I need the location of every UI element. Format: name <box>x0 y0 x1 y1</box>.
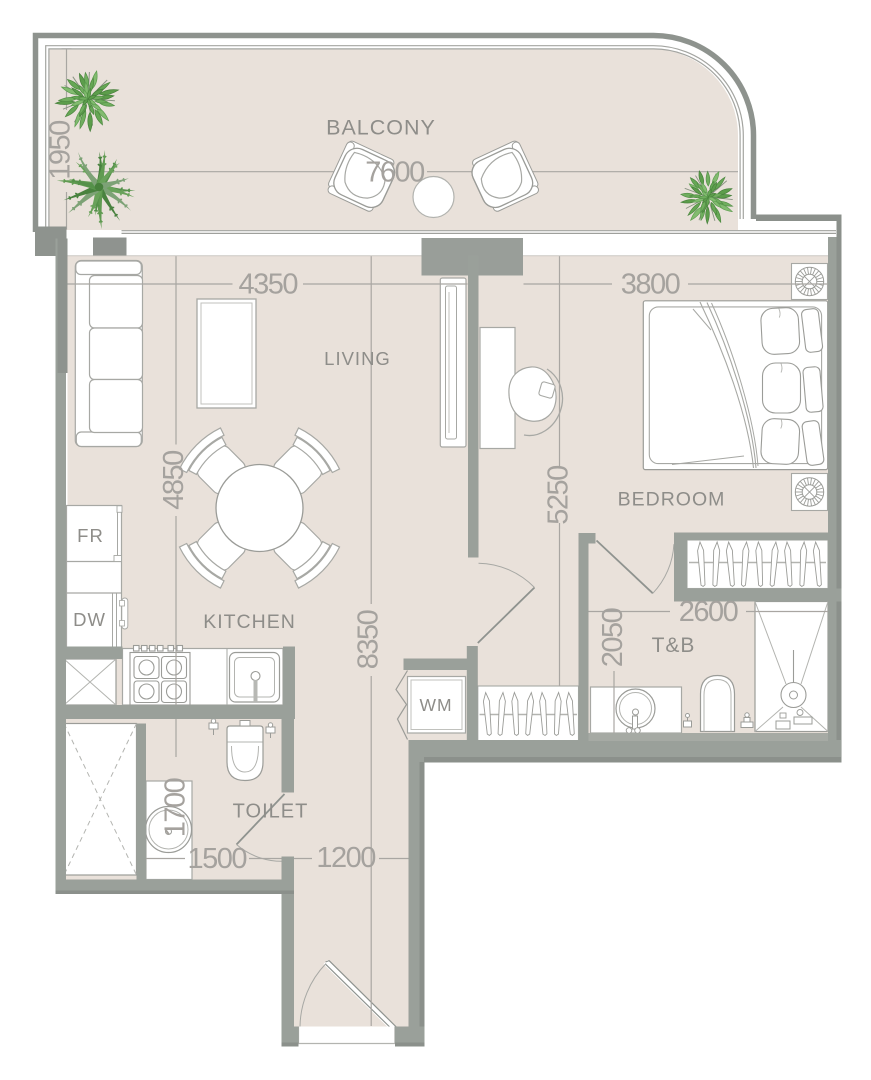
svg-text:3800: 3800 <box>621 269 680 301</box>
svg-text:4350: 4350 <box>239 269 298 301</box>
svg-text:1700: 1700 <box>160 778 192 837</box>
svg-text:BEDROOM: BEDROOM <box>618 489 726 511</box>
svg-text:2600: 2600 <box>679 596 738 628</box>
svg-text:8350: 8350 <box>353 610 385 669</box>
svg-text:FR: FR <box>77 525 104 546</box>
svg-text:DW: DW <box>73 609 106 630</box>
svg-text:BALCONY: BALCONY <box>326 116 436 140</box>
svg-text:7600: 7600 <box>365 157 424 189</box>
svg-text:LIVING: LIVING <box>324 348 391 369</box>
svg-text:1200: 1200 <box>316 842 375 874</box>
svg-text:TOILET: TOILET <box>233 801 309 823</box>
svg-text:5250: 5250 <box>543 466 575 525</box>
svg-text:KITCHEN: KITCHEN <box>203 611 296 633</box>
svg-text:1950: 1950 <box>45 121 77 180</box>
svg-text:4850: 4850 <box>158 451 190 510</box>
svg-text:2050: 2050 <box>597 608 629 667</box>
svg-text:T&B: T&B <box>652 634 696 657</box>
svg-text:WM: WM <box>419 695 452 715</box>
svg-text:1500: 1500 <box>188 843 247 875</box>
